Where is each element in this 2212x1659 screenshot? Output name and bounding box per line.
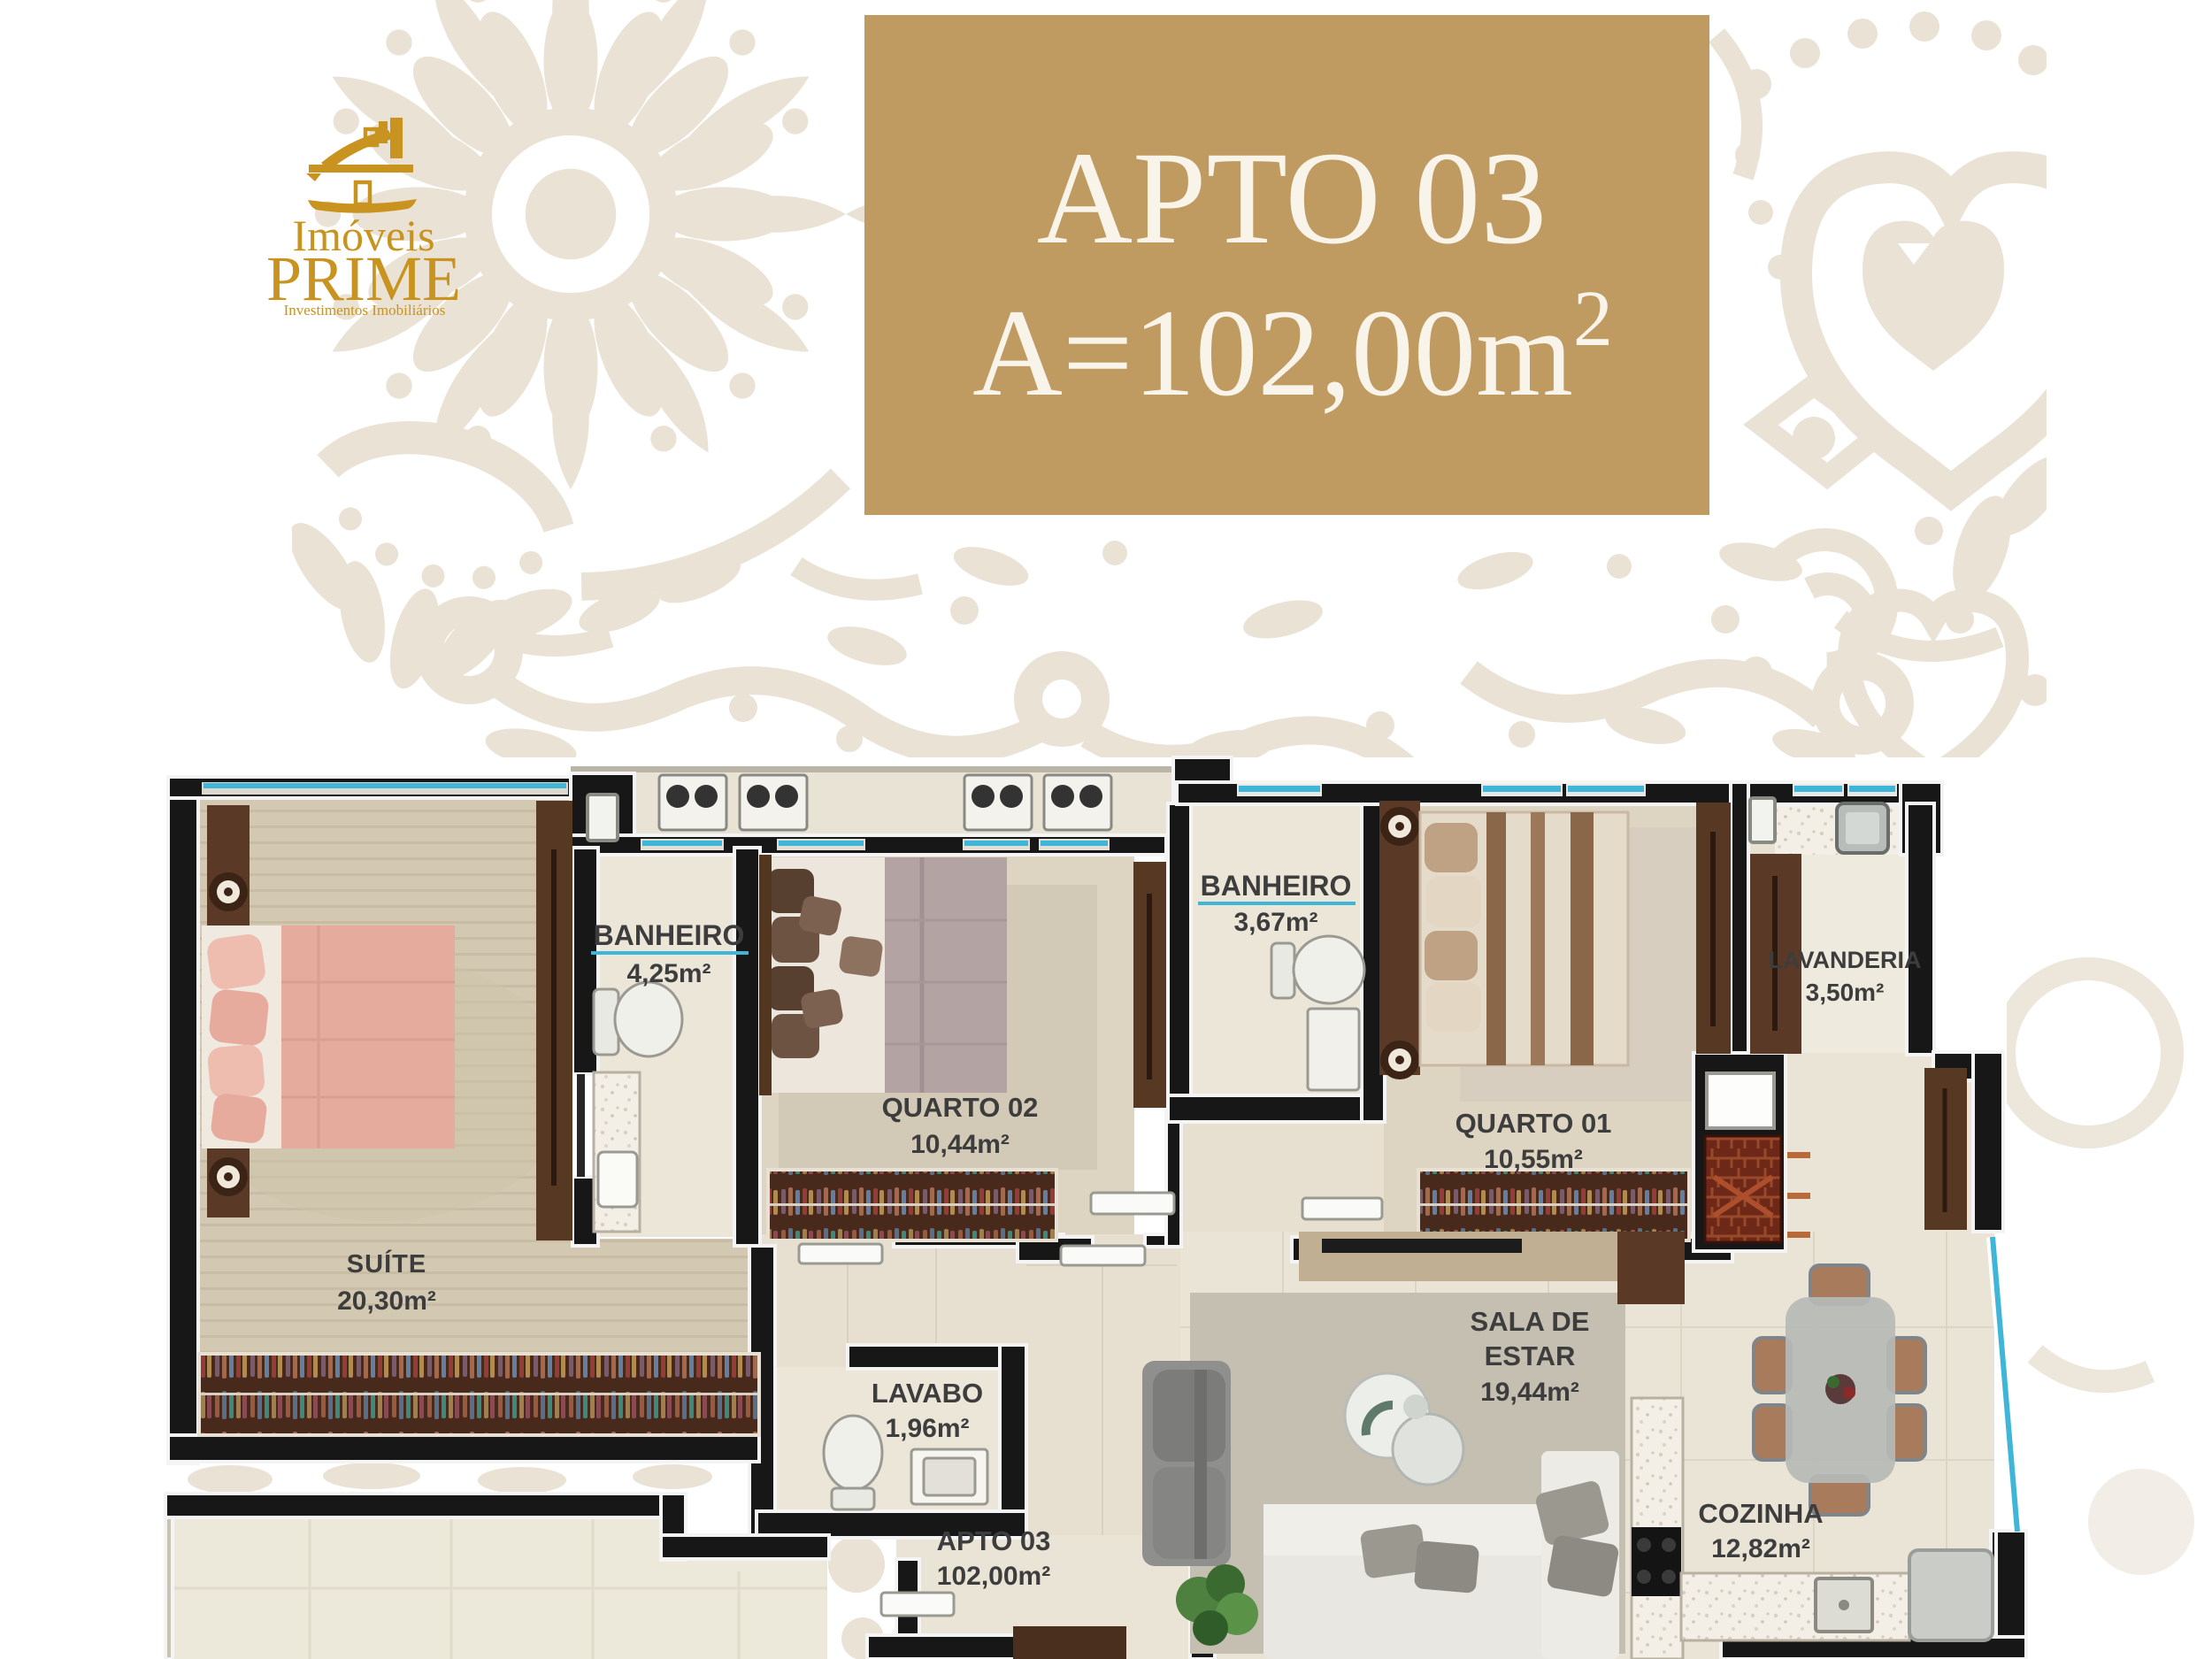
svg-text:APTO 03: APTO 03 [937, 1525, 1051, 1556]
svg-text:10,55m²: 10,55m² [1484, 1145, 1583, 1174]
svg-text:12,82m²: 12,82m² [1711, 1534, 1810, 1563]
svg-text:LAVABO: LAVABO [872, 1378, 983, 1409]
svg-text:3,50m²: 3,50m² [1806, 979, 1885, 1006]
svg-text:BANHEIRO: BANHEIRO [1201, 870, 1352, 902]
svg-text:Investimentos Imobiliários: Investimentos Imobiliários [284, 302, 446, 319]
svg-text:A=102,00m2: A=102,00m2 [972, 275, 1613, 422]
svg-text:4,25m²: 4,25m² [626, 959, 710, 988]
svg-text:QUARTO 02: QUARTO 02 [882, 1092, 1039, 1123]
svg-text:SUÍTE: SUÍTE [347, 1248, 426, 1279]
svg-text:ESTAR: ESTAR [1485, 1340, 1576, 1371]
svg-text:19,44m²: 19,44m² [1480, 1378, 1579, 1407]
svg-text:20,30m²: 20,30m² [337, 1286, 436, 1316]
svg-text:LAVANDERIA: LAVANDERIA [1769, 947, 1922, 973]
svg-text:SALA DE: SALA DE [1471, 1306, 1590, 1337]
svg-text:QUARTO 01: QUARTO 01 [1455, 1108, 1612, 1139]
svg-text:1,96m²: 1,96m² [885, 1414, 969, 1443]
svg-text:3,67m²: 3,67m² [1233, 908, 1317, 937]
svg-text:COZINHA: COZINHA [1698, 1498, 1823, 1529]
svg-text:10,44m²: 10,44m² [910, 1130, 1010, 1159]
svg-text:102,00m²: 102,00m² [937, 1562, 1050, 1591]
svg-text:BANHEIRO: BANHEIRO [594, 919, 745, 951]
svg-text:APTO 03: APTO 03 [1037, 125, 1548, 272]
